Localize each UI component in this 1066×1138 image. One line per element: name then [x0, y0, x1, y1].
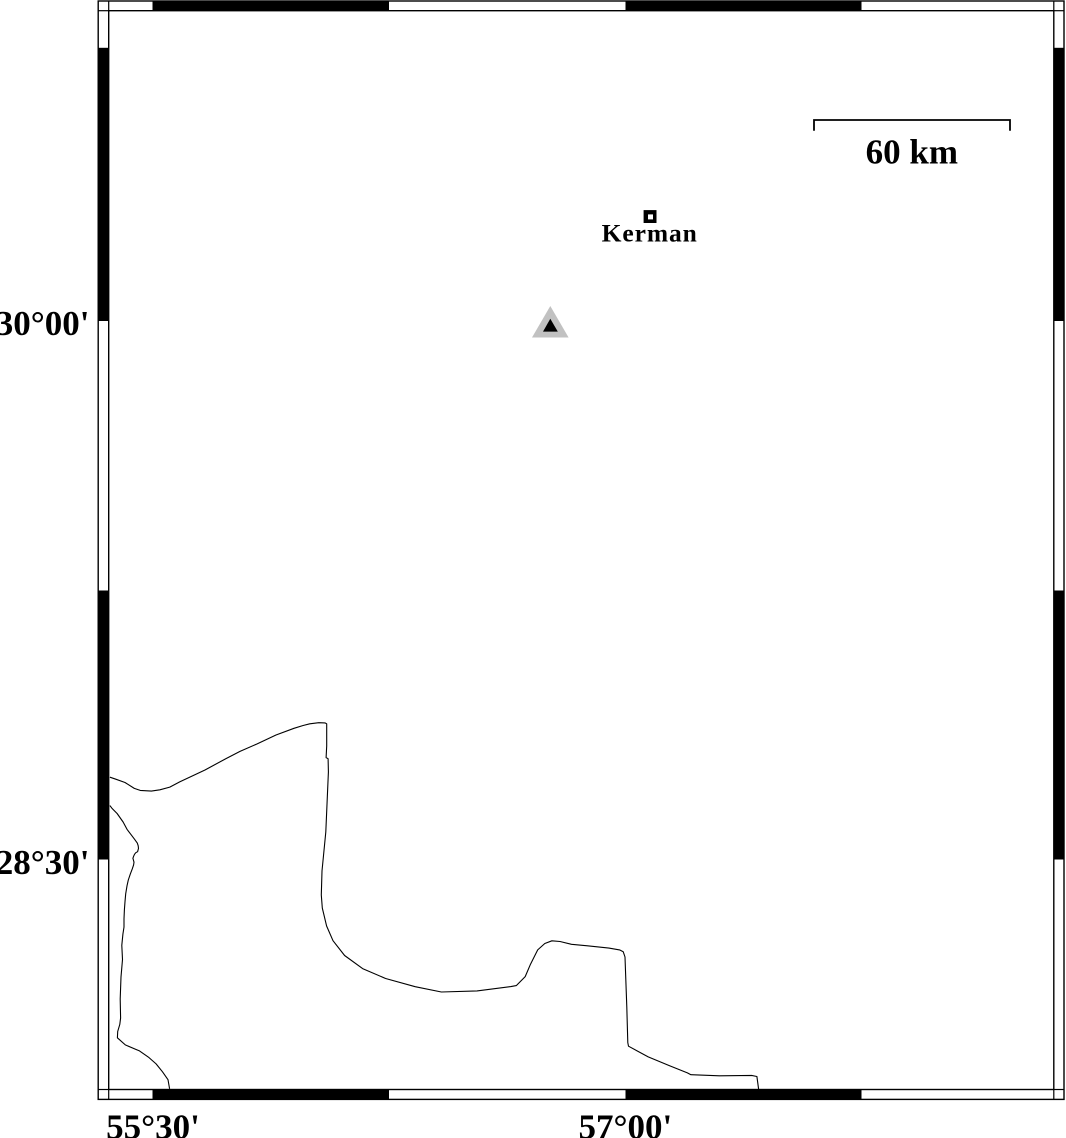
- svg-text:30°00': 30°00': [0, 304, 90, 343]
- svg-text:28°30': 28°30': [0, 843, 90, 882]
- svg-text:60 km: 60 km: [866, 132, 958, 171]
- svg-text:Kerman: Kerman: [602, 218, 698, 247]
- svg-text:57°00': 57°00': [579, 1108, 673, 1138]
- svg-text:55°30': 55°30': [106, 1108, 200, 1138]
